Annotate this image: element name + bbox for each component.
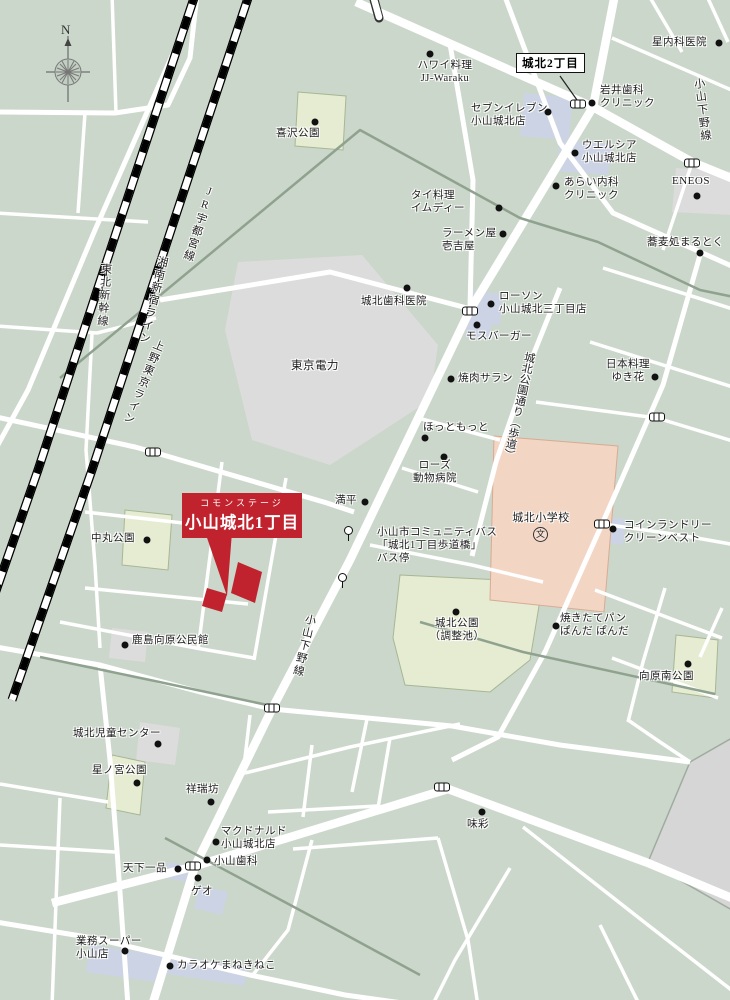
- poi-label-hoshi-clinic: 星内科医院: [652, 36, 707, 49]
- poi-label-gyomu-super: 業務スーパー 小山店: [76, 935, 142, 961]
- poi-label-tepco: 東京電力: [291, 359, 339, 373]
- poi-label-tenkaippin: 天下一品: [123, 862, 167, 875]
- poi-dot-hawaii: [427, 51, 434, 58]
- poi-label-johoku-park: 城北公園 （調整池）: [426, 617, 488, 643]
- poi-label-hawaii: ハワイ料理 JJ-Waraku: [410, 59, 480, 85]
- traffic-signal-icon: [185, 862, 201, 871]
- poi-label-arai-clinic: あらい内科 クリニック: [564, 176, 619, 202]
- poi-dot-mcdonalds: [213, 839, 220, 846]
- poi-label-rose-vet: ローズ 動物病院: [406, 459, 464, 485]
- poi-dot-oyama-dental: [204, 857, 211, 864]
- poi-dot-ramen-ichikichiya: [500, 231, 507, 238]
- traffic-signal-icon: [594, 520, 610, 529]
- poi-label-mcdonalds: マクドナルド 小山城北店: [221, 825, 287, 851]
- poi-label-yakiniku: 焼肉サラン: [458, 372, 513, 385]
- poi-label-shouzuibou: 祥瑞坊: [186, 783, 219, 796]
- poi-label-geo: ゲオ: [191, 885, 213, 898]
- poi-dot-johoku-park: [453, 609, 460, 616]
- poi-label-ajisai: 味彩: [467, 818, 489, 831]
- school-symbol-icon: 文: [533, 527, 548, 542]
- callout-brand: コモンステージ: [182, 496, 302, 509]
- bus-stop-icon: [338, 573, 347, 582]
- bus-stop-icon: [344, 526, 353, 535]
- poi-label-mos-burger: モスバーガー: [466, 330, 532, 343]
- poi-label-lawson: ローソン 小山城北三丁目店: [499, 290, 587, 316]
- poi-label-manpei: 満平: [335, 494, 357, 507]
- poi-dot-children-center: [155, 741, 162, 748]
- poi-label-panda-bakery: 焼きたてパン ぱんだ ぱんだ: [560, 612, 629, 638]
- poi-dot-welcia: [572, 150, 579, 157]
- poi-dot-kizawa-park: [312, 119, 319, 126]
- poi-label-thai-imdee: タイ料理 イムディー: [411, 189, 465, 215]
- property-callout: コモンステージ 小山城北1丁目: [182, 493, 302, 538]
- poi-label-yukihana: 日本料理 ゆき花: [599, 358, 657, 384]
- poi-dot-ajisai: [479, 809, 486, 816]
- traffic-signal-icon: [649, 413, 665, 422]
- poi-label-hoshinomiya-park: 星ノ宮公園: [92, 764, 147, 777]
- poi-label-hottomotto: ほっともっと: [423, 421, 489, 434]
- traffic-signal-icon: [264, 704, 280, 713]
- poi-dot-panda-bakery: [553, 623, 560, 630]
- poi-label-school: 城北小学校: [505, 512, 577, 526]
- traffic-signal-icon: [145, 448, 161, 457]
- poi-dot-nakamaru-park: [144, 537, 151, 544]
- traffic-signal-icon: [570, 100, 586, 109]
- compass-north-label: N: [61, 22, 70, 38]
- poi-label-children-center: 城北児童センター: [73, 727, 161, 740]
- poi-label-soba-marutoku: 蕎麦処まるとく: [647, 236, 724, 249]
- poi-label-mukaihara-park: 向原南公園: [639, 670, 694, 683]
- poi-label-ramen: ラーメン屋 壱吉屋: [442, 227, 497, 253]
- poi-dot-johoku-dental: [404, 285, 411, 292]
- poi-dot-eneos: [694, 193, 701, 200]
- poi-label-oyama-dental: 小山歯科: [214, 855, 258, 868]
- poi-dot-thai-imdee: [496, 205, 503, 212]
- poi-label-eneos: ENEOS: [667, 175, 715, 189]
- poi-dot-arai-clinic: [553, 183, 560, 190]
- poi-label-welcia: ウエルシア 小山城北店: [582, 139, 637, 165]
- poi-dot-hottomotto: [422, 435, 429, 442]
- poi-dot-manpei: [362, 499, 369, 506]
- street-map: N 城北2丁目 コモンステージ 小山城北1丁目 JR宇都宮線 東北新幹線 湘南新…: [0, 0, 730, 1000]
- traffic-signal-icon: [434, 783, 450, 792]
- poi-label-bus-stop: 小山市コミュニティバス 「城北1丁目歩道橋」 バス停: [377, 526, 497, 565]
- callout-name: 小山城北1丁目: [182, 509, 302, 533]
- poi-dot-soba-marutoku: [697, 250, 704, 257]
- poi-label-karaoke: カラオケまねきねこ: [177, 959, 276, 972]
- poi-label-kizawa-park: 喜沢公園: [276, 127, 320, 140]
- poi-dot-shouzuibou: [208, 799, 215, 806]
- poi-dot-hoshinomiya-park: [134, 780, 141, 787]
- area-sign-johoku2: 城北2丁目: [516, 53, 585, 73]
- poi-label-iwai-dental: 岩井歯科 クリニック: [600, 84, 655, 110]
- poi-dot-tenkaippin: [175, 866, 182, 873]
- kizawa-park-block: [295, 92, 346, 150]
- poi-dot-community-hall: [122, 642, 129, 649]
- traffic-signal-icon: [684, 159, 700, 168]
- poi-dot-geo: [195, 875, 202, 882]
- poi-dot-karaoke: [167, 963, 174, 970]
- poi-dot-coin-laundry: [610, 526, 617, 533]
- poi-label-johoku-dental: 城北歯科医院: [361, 295, 427, 308]
- poi-label-nakamaru-park: 中丸公園: [91, 532, 135, 545]
- poi-label-seven-eleven: セブンイレブン 小山城北店: [471, 102, 548, 128]
- poi-label-community-hall: 鹿島向原公民館: [132, 634, 209, 647]
- poi-label-coin-laundry: コインランドリー クリーンベスト: [624, 519, 712, 545]
- poi-dot-lawson: [488, 301, 495, 308]
- traffic-signal-icon: [462, 307, 478, 316]
- poi-dot-yakiniku-saran: [448, 376, 455, 383]
- poi-dot-mos-burger: [474, 322, 481, 329]
- poi-dot-iwai-dental: [589, 100, 596, 107]
- poi-dot-hoshi-clinic: [716, 40, 723, 47]
- poi-dot-mukaihara-park: [685, 661, 692, 668]
